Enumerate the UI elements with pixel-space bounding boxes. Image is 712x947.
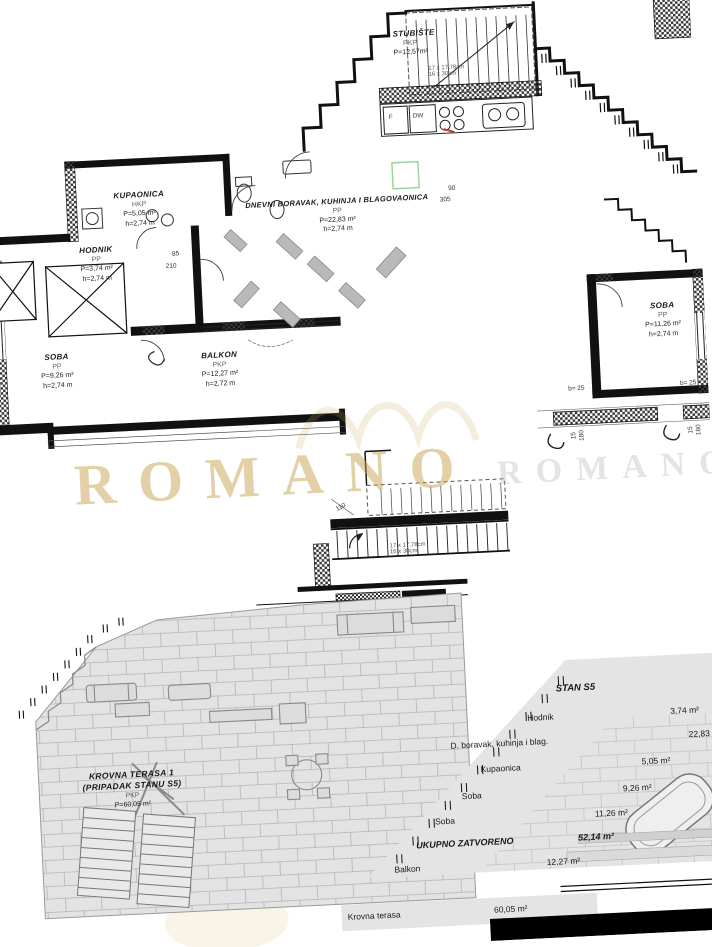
room-label-stubiste: STUBIŠTE PKP P=12,57m²	[392, 28, 435, 59]
stepped-wall-right	[535, 41, 695, 178]
room-label-kupaonica: KUPAONICA HKP P=5,05 m² h=2,74 m	[91, 188, 188, 230]
room-label-soba-right: SOBA PP P=11,26 m² h=2,74 m	[607, 298, 712, 341]
apartment-plan	[0, 0, 711, 476]
fridge-letter: F	[389, 114, 393, 121]
fridge	[383, 106, 408, 134]
dim-90: 90	[448, 185, 456, 192]
dim-180-left: 180	[578, 430, 586, 441]
sink-icon	[482, 102, 525, 128]
toilet-icon	[235, 177, 252, 203]
green-marker	[392, 162, 419, 189]
dim-210: 210	[166, 263, 177, 271]
gutter-hook-icon	[663, 425, 679, 440]
dim-85: 85	[172, 250, 180, 257]
kitchen-counter	[380, 97, 533, 136]
right-balcony-slabs	[537, 403, 711, 450]
stair-note-roof: 17 x 17,78cm 16 x 30cm	[389, 542, 426, 556]
stepped-wall-mid-right	[605, 196, 686, 266]
red-tick	[444, 129, 453, 132]
dishwasher-letter: DW	[412, 112, 423, 120]
dim-b25-right: b= 25	[680, 379, 697, 387]
corner-wall-hatch	[653, 0, 691, 39]
rotated-plan-canvas: ROMANO ROMANO STUBIŠTE PKP P=12,57m² 17 …	[0, 0, 712, 947]
dim-15-left: 15	[570, 432, 577, 440]
dim-180-right: 180	[695, 424, 703, 435]
room-label-hodnik: HODNIK PP P=3,74 m² h=2,74 m	[41, 243, 153, 286]
dim-15-right: 15	[687, 426, 694, 434]
gutter-hook-icon	[548, 434, 564, 449]
room-label-balkon: BALKON PKP P=12,27 m² h=2,72 m	[159, 348, 281, 391]
room-label-soba-left: SOBA PP P=9,26 m² h=2,74 m	[4, 350, 111, 393]
railing-ticks-right	[542, 48, 678, 179]
stove-icon	[439, 106, 464, 130]
stair-note-top: 17 x 17,78cm 16 x 30cm	[428, 64, 465, 78]
section-double-line	[560, 878, 712, 891]
drawing-sheet: ROMANO ROMANO STUBIŠTE PKP P=12,57m² 17 …	[0, 0, 712, 947]
dim-305: 305	[440, 196, 451, 204]
dim-b25-left: b= 25	[568, 385, 585, 393]
table-title: STAN S5	[556, 682, 596, 695]
